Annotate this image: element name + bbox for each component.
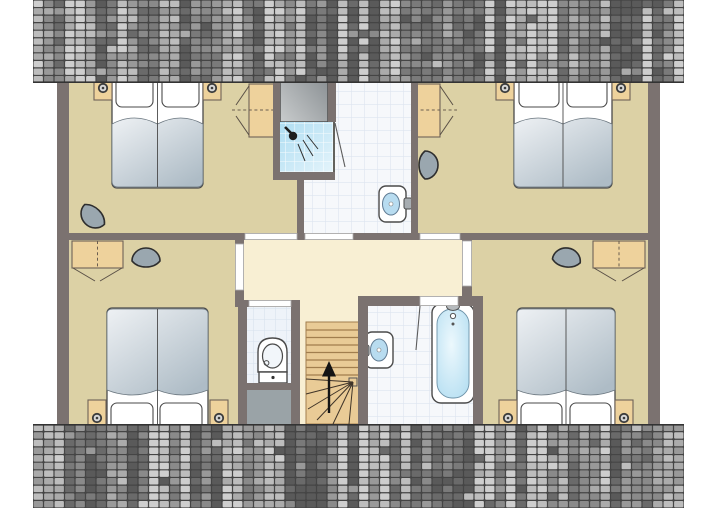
roof-tile bbox=[391, 463, 400, 469]
roof-tile bbox=[538, 31, 547, 37]
roof-tile bbox=[370, 16, 379, 22]
roof-tile bbox=[223, 463, 232, 469]
roof-tile bbox=[212, 455, 221, 461]
roof-tile bbox=[653, 46, 662, 52]
roof-tile bbox=[349, 16, 358, 22]
roof-tile bbox=[674, 1, 683, 7]
roof-tile bbox=[464, 23, 473, 29]
roof-tile bbox=[328, 69, 337, 75]
roof-tile bbox=[139, 53, 148, 59]
roof-tile bbox=[485, 53, 494, 59]
roof-tile bbox=[590, 31, 599, 37]
roof-tile bbox=[107, 53, 116, 59]
roof-tile bbox=[643, 486, 652, 492]
roof-tile bbox=[97, 53, 106, 59]
roof-tile bbox=[76, 61, 85, 67]
roof-tile bbox=[296, 486, 305, 492]
roof-tile bbox=[391, 61, 400, 67]
roof-tile bbox=[212, 53, 221, 59]
roof-tile bbox=[569, 463, 578, 469]
roof-tile bbox=[307, 31, 316, 37]
roof-tile bbox=[233, 432, 242, 438]
roof-tile bbox=[380, 46, 389, 52]
roof-tile bbox=[506, 463, 515, 469]
roof-tile bbox=[611, 53, 620, 59]
roof-tile bbox=[296, 1, 305, 7]
roof-tile bbox=[548, 69, 557, 75]
roof-tile bbox=[128, 486, 137, 492]
roof-tile bbox=[643, 38, 652, 44]
roof-tile bbox=[286, 46, 295, 52]
roof-tile bbox=[128, 23, 137, 29]
roof-tile bbox=[580, 61, 589, 67]
roof-tile bbox=[107, 38, 116, 44]
roof-tile bbox=[590, 61, 599, 67]
roof-tile bbox=[569, 440, 578, 446]
door-bathroom-top bbox=[305, 234, 353, 240]
roof-tile bbox=[181, 38, 190, 44]
roof-tile bbox=[643, 501, 652, 507]
roof-tile bbox=[538, 69, 547, 75]
roof-tile bbox=[506, 46, 515, 52]
roof-tile bbox=[86, 53, 95, 59]
roof-tile bbox=[464, 448, 473, 454]
roof-tile bbox=[664, 478, 673, 484]
roof-tile bbox=[349, 440, 358, 446]
roof-tile bbox=[307, 470, 316, 476]
door-bedroom-bottom-right bbox=[463, 241, 472, 286]
roof-tile bbox=[653, 440, 662, 446]
roof-tile bbox=[223, 31, 232, 37]
roof-tile bbox=[65, 46, 74, 52]
roof-tile bbox=[611, 46, 620, 52]
roof-tile bbox=[391, 455, 400, 461]
roof-tile bbox=[139, 23, 148, 29]
roof-tile bbox=[328, 31, 337, 37]
roof-tile bbox=[559, 53, 568, 59]
roof-tile bbox=[265, 486, 274, 492]
roof-tile bbox=[160, 46, 169, 52]
roof-tile bbox=[622, 486, 631, 492]
roof-tile bbox=[139, 470, 148, 476]
roof-tile bbox=[653, 53, 662, 59]
roof-tile bbox=[548, 61, 557, 67]
roof-tile bbox=[181, 432, 190, 438]
roof-tile bbox=[86, 470, 95, 476]
roof-tile bbox=[370, 53, 379, 59]
roof-tile bbox=[233, 1, 242, 7]
roof-tile bbox=[307, 463, 316, 469]
roof-tile bbox=[548, 23, 557, 29]
roof-tile bbox=[286, 478, 295, 484]
roof-tile bbox=[244, 455, 253, 461]
roof-tile bbox=[601, 455, 610, 461]
roof-tile bbox=[328, 478, 337, 484]
roof-tile bbox=[517, 69, 526, 75]
roof-tile bbox=[590, 478, 599, 484]
roof-tile bbox=[506, 31, 515, 37]
roof-tile bbox=[443, 38, 452, 44]
roof-tile bbox=[401, 486, 410, 492]
roof-tile bbox=[664, 16, 673, 22]
roof-tile bbox=[611, 1, 620, 7]
roof-tile bbox=[664, 46, 673, 52]
roof-tile bbox=[632, 69, 641, 75]
roof-tile bbox=[265, 16, 274, 22]
roof-tile bbox=[202, 69, 211, 75]
roof-tile bbox=[496, 440, 505, 446]
roof-tile bbox=[391, 440, 400, 446]
roof-tile bbox=[307, 501, 316, 507]
roof-tile bbox=[44, 8, 53, 14]
roof-tile bbox=[443, 69, 452, 75]
roof-tile bbox=[622, 478, 631, 484]
roof-tile bbox=[538, 486, 547, 492]
roof-tile bbox=[632, 61, 641, 67]
roof-tile bbox=[181, 463, 190, 469]
roof-tile bbox=[265, 432, 274, 438]
roof-tile bbox=[55, 53, 64, 59]
roof-tile bbox=[128, 53, 137, 59]
roof-tile bbox=[359, 486, 368, 492]
roof-tile bbox=[76, 38, 85, 44]
roof-tile bbox=[244, 53, 253, 59]
roof-tile bbox=[296, 69, 305, 75]
roof-tile bbox=[55, 8, 64, 14]
knob-dot bbox=[504, 87, 507, 90]
roof-tile bbox=[380, 501, 389, 507]
roof-tile bbox=[76, 501, 85, 507]
roof-tile bbox=[265, 501, 274, 507]
roof-tile bbox=[244, 440, 253, 446]
roof-tile bbox=[527, 493, 536, 499]
roof-tile bbox=[485, 16, 494, 22]
roof-tile bbox=[307, 1, 316, 7]
roof-tile bbox=[611, 8, 620, 14]
roof-tile bbox=[170, 1, 179, 7]
roof-tile bbox=[107, 31, 116, 37]
roof-tile bbox=[359, 440, 368, 446]
roof-tile bbox=[170, 31, 179, 37]
roof-tile bbox=[254, 38, 263, 44]
roof-tile bbox=[559, 455, 568, 461]
roof-tile bbox=[86, 69, 95, 75]
roof-tile bbox=[97, 23, 106, 29]
roof-tile bbox=[202, 8, 211, 14]
roof-tile bbox=[97, 38, 106, 44]
roof-tile bbox=[265, 455, 274, 461]
roof-tile bbox=[674, 61, 683, 67]
roof-tile bbox=[233, 31, 242, 37]
roof-tile bbox=[674, 31, 683, 37]
roof-tile bbox=[370, 1, 379, 7]
roof-tile bbox=[359, 53, 368, 59]
roof-tile bbox=[590, 463, 599, 469]
roof-tile bbox=[391, 470, 400, 476]
roof-tile bbox=[370, 486, 379, 492]
roof-tile bbox=[559, 16, 568, 22]
roof-tile bbox=[674, 38, 683, 44]
roof-tile bbox=[86, 23, 95, 29]
roof-tile bbox=[433, 53, 442, 59]
roof-tile bbox=[527, 16, 536, 22]
roof-tile bbox=[44, 31, 53, 37]
roof-tile bbox=[601, 16, 610, 22]
roof-tile bbox=[160, 31, 169, 37]
roof-tile bbox=[401, 463, 410, 469]
roof-tile bbox=[118, 1, 127, 7]
roof-tile bbox=[401, 46, 410, 52]
roof-tile bbox=[412, 61, 421, 67]
roof-tile bbox=[485, 478, 494, 484]
roof-tile bbox=[118, 470, 127, 476]
roof-tile bbox=[559, 463, 568, 469]
roof-tile bbox=[380, 486, 389, 492]
roof-tile bbox=[233, 470, 242, 476]
roof-tile bbox=[401, 470, 410, 476]
roof-tile bbox=[160, 501, 169, 507]
roof-tile bbox=[643, 53, 652, 59]
roof-tile bbox=[160, 493, 169, 499]
roof-tile bbox=[128, 440, 137, 446]
roof-tile bbox=[244, 38, 253, 44]
roof-tile bbox=[107, 501, 116, 507]
roof-tile bbox=[307, 432, 316, 438]
roof-tile bbox=[139, 1, 148, 7]
door-bedroom-top-right bbox=[420, 234, 460, 240]
roof-tile bbox=[349, 501, 358, 507]
roof-tile bbox=[233, 8, 242, 14]
roof-tile bbox=[548, 38, 557, 44]
roof-tile bbox=[391, 432, 400, 438]
roof-tile bbox=[422, 31, 431, 37]
roof-tile bbox=[65, 8, 74, 14]
roof-tile bbox=[118, 31, 127, 37]
roof-tile bbox=[44, 448, 53, 454]
roof-tile bbox=[580, 16, 589, 22]
roof-tile bbox=[674, 8, 683, 14]
roof-tile bbox=[590, 448, 599, 454]
roof-tile bbox=[317, 470, 326, 476]
roof-tile bbox=[86, 16, 95, 22]
roof-tile bbox=[454, 470, 463, 476]
roof-tile bbox=[265, 23, 274, 29]
roof-tile bbox=[496, 16, 505, 22]
roof-tile bbox=[170, 493, 179, 499]
roof-tile bbox=[580, 448, 589, 454]
roof-tile bbox=[485, 69, 494, 75]
roof-tile bbox=[433, 31, 442, 37]
roof-tile bbox=[65, 38, 74, 44]
roof-tile bbox=[506, 493, 515, 499]
roof-tile bbox=[412, 16, 421, 22]
roof-tile bbox=[191, 432, 200, 438]
roof-tile bbox=[296, 8, 305, 14]
roof-tile bbox=[527, 486, 536, 492]
roof-tile bbox=[286, 470, 295, 476]
roof-tile bbox=[244, 1, 253, 7]
roof-tile bbox=[506, 501, 515, 507]
door-bathroom-bottom bbox=[420, 297, 458, 306]
roof-tile bbox=[223, 486, 232, 492]
roof-tile bbox=[559, 1, 568, 7]
roof-tile bbox=[443, 455, 452, 461]
roof-tile bbox=[632, 46, 641, 52]
roof-tile bbox=[170, 486, 179, 492]
roof-tile bbox=[338, 61, 347, 67]
roof-tile bbox=[496, 61, 505, 67]
roof-tile bbox=[181, 440, 190, 446]
roof-tile bbox=[44, 493, 53, 499]
roof-tile bbox=[412, 448, 421, 454]
roof-tile bbox=[496, 432, 505, 438]
roof-tile bbox=[433, 478, 442, 484]
roof-tile bbox=[202, 478, 211, 484]
roof-tile bbox=[286, 486, 295, 492]
roof-tile bbox=[160, 478, 169, 484]
roof-tile bbox=[380, 470, 389, 476]
roof-tile bbox=[118, 46, 127, 52]
roof-tile bbox=[569, 38, 578, 44]
roof-tile bbox=[601, 478, 610, 484]
roof-tile bbox=[517, 432, 526, 438]
roof-tile bbox=[506, 486, 515, 492]
roof-tile bbox=[128, 61, 137, 67]
roof-tile bbox=[443, 448, 452, 454]
roof-tile bbox=[391, 31, 400, 37]
roof-tile bbox=[454, 455, 463, 461]
roof-tile bbox=[464, 46, 473, 52]
roof-tile bbox=[569, 23, 578, 29]
roof-tile bbox=[244, 31, 253, 37]
roof-tile bbox=[170, 478, 179, 484]
roof-tile bbox=[653, 1, 662, 7]
roof-tile bbox=[380, 16, 389, 22]
wall-shower-bottom bbox=[273, 172, 335, 180]
roof-tile bbox=[286, 23, 295, 29]
roof-tile bbox=[391, 486, 400, 492]
roof-tile bbox=[34, 69, 43, 75]
roof-tile bbox=[65, 455, 74, 461]
knob-dot bbox=[507, 417, 510, 420]
roof-tile bbox=[422, 486, 431, 492]
roof-tile bbox=[34, 23, 43, 29]
roof-tile bbox=[34, 31, 43, 37]
roof-tile bbox=[517, 1, 526, 7]
roof-tile bbox=[559, 501, 568, 507]
roof-tile bbox=[212, 8, 221, 14]
roof-tile bbox=[433, 486, 442, 492]
roof-tile bbox=[191, 463, 200, 469]
roof-tile bbox=[527, 46, 536, 52]
roof-tile bbox=[338, 23, 347, 29]
roof-tile bbox=[674, 478, 683, 484]
roof-tile bbox=[317, 432, 326, 438]
roof-tile bbox=[622, 463, 631, 469]
roof-tile bbox=[443, 486, 452, 492]
roof-tile bbox=[97, 69, 106, 75]
roof-tile bbox=[118, 493, 127, 499]
roof-tile bbox=[674, 501, 683, 507]
roof-tile bbox=[359, 448, 368, 454]
roof-tile bbox=[485, 1, 494, 7]
roof-tile bbox=[118, 23, 127, 29]
roof-tile bbox=[76, 46, 85, 52]
roof-tile bbox=[496, 493, 505, 499]
roof-tile bbox=[76, 8, 85, 14]
roof-tile bbox=[664, 23, 673, 29]
roof-tile bbox=[202, 53, 211, 59]
roof-tile bbox=[181, 486, 190, 492]
floorplan-canvas bbox=[0, 0, 713, 519]
roof-tile bbox=[475, 61, 484, 67]
roof-tile bbox=[107, 486, 116, 492]
roof-tile bbox=[296, 501, 305, 507]
roof-tile bbox=[622, 23, 631, 29]
bathtub bbox=[432, 302, 474, 404]
roof-tile bbox=[44, 455, 53, 461]
roof-tile bbox=[328, 46, 337, 52]
bathroom-top-floor-ext bbox=[304, 180, 335, 233]
roof-tile bbox=[433, 38, 442, 44]
roof-tile bbox=[401, 1, 410, 7]
roof-tile bbox=[643, 23, 652, 29]
roof-tile bbox=[590, 432, 599, 438]
roof-tile bbox=[569, 31, 578, 37]
roof-tile bbox=[401, 69, 410, 75]
roof-tile bbox=[422, 448, 431, 454]
roof-tile bbox=[643, 46, 652, 52]
roof-tile bbox=[580, 31, 589, 37]
roof-tile bbox=[254, 23, 263, 29]
roof-tile bbox=[97, 455, 106, 461]
roof-tile bbox=[317, 1, 326, 7]
roof-tile bbox=[128, 478, 137, 484]
roof-tile bbox=[601, 53, 610, 59]
roof-tile bbox=[128, 38, 137, 44]
roof-tile bbox=[601, 448, 610, 454]
roof-tile bbox=[44, 53, 53, 59]
wall-bath2-left bbox=[358, 300, 368, 424]
roof-tile bbox=[328, 501, 337, 507]
roof-tile bbox=[317, 486, 326, 492]
roof-tile bbox=[212, 470, 221, 476]
roof-tile bbox=[559, 470, 568, 476]
roof-tile bbox=[170, 16, 179, 22]
roof-tile bbox=[55, 478, 64, 484]
roof-tile bbox=[527, 53, 536, 59]
roof-tile bbox=[569, 470, 578, 476]
roof-tile bbox=[590, 470, 599, 476]
roof-tile bbox=[44, 470, 53, 476]
roof-tile bbox=[632, 501, 641, 507]
roof-tile bbox=[160, 440, 169, 446]
roof-tile bbox=[464, 16, 473, 22]
roof-tile bbox=[422, 463, 431, 469]
roof-tile bbox=[317, 440, 326, 446]
roof-tile bbox=[170, 501, 179, 507]
roof-tile bbox=[349, 69, 358, 75]
wall-notch bbox=[297, 180, 304, 240]
roof-tile bbox=[611, 486, 620, 492]
roof-tile bbox=[223, 38, 232, 44]
tub-dot bbox=[452, 323, 455, 326]
roof-tile bbox=[202, 440, 211, 446]
roof-tile bbox=[632, 440, 641, 446]
roof-tile bbox=[223, 46, 232, 52]
roof-tile bbox=[496, 31, 505, 37]
roof-tile bbox=[569, 53, 578, 59]
